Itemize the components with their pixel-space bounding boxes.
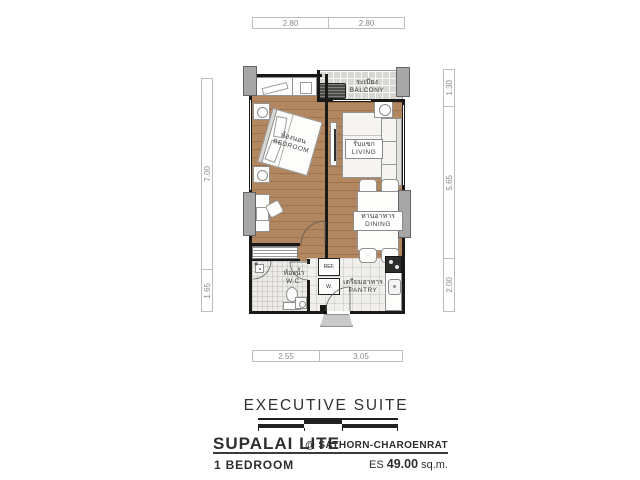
dim-top-1: 2.80: [253, 18, 328, 28]
dim-bottom-2: 3.05: [319, 351, 402, 361]
dim-left-2: 1.65: [202, 269, 212, 311]
balcony-label: ระเบียง BALCONY: [344, 79, 390, 95]
living-label: รับแขก LIVING: [345, 139, 383, 159]
footer-divider: [213, 452, 448, 454]
project-location: @ SATHORN-CHAROENRAT: [305, 440, 448, 451]
dimension-bar-right: 1.30 5.65 2.00: [443, 69, 455, 312]
unit-area: ES 49.00 sq.m.: [369, 457, 448, 471]
dim-right-1: 1.30: [444, 70, 454, 106]
dim-top-2: 2.80: [328, 18, 404, 28]
dimension-bar-left: 7.00 1.65: [201, 78, 213, 312]
area-unit: sq.m.: [421, 459, 448, 471]
dining-label: ทานอาหาร DINING: [353, 211, 403, 231]
suite-title: EXECUTIVE SUITE: [206, 397, 446, 415]
dim-right-3: 2.00: [444, 258, 454, 311]
area-prefix: ES: [369, 459, 384, 471]
dim-left-1: 7.00: [202, 79, 212, 269]
floorplan-page: 2.80 2.80 2.55 3.05 7.00 1.65 1.30 5.65 …: [0, 0, 640, 480]
dim-bottom-1: 2.55: [253, 351, 319, 361]
pantry-label: เตรียมอาหาร PANTRY: [340, 279, 386, 295]
door-swing-arcs: [240, 60, 420, 340]
scale-bar: [258, 418, 398, 431]
unit-type: 1 BEDROOM: [214, 458, 294, 472]
wc-label: ห้องน้ำ W.C.: [278, 270, 310, 286]
dimension-bar-bottom: 2.55 3.05: [252, 350, 403, 362]
area-value: 49.00: [387, 457, 418, 471]
dim-right-2: 5.65: [444, 106, 454, 258]
dimension-bar-top: 2.80 2.80: [252, 17, 405, 29]
